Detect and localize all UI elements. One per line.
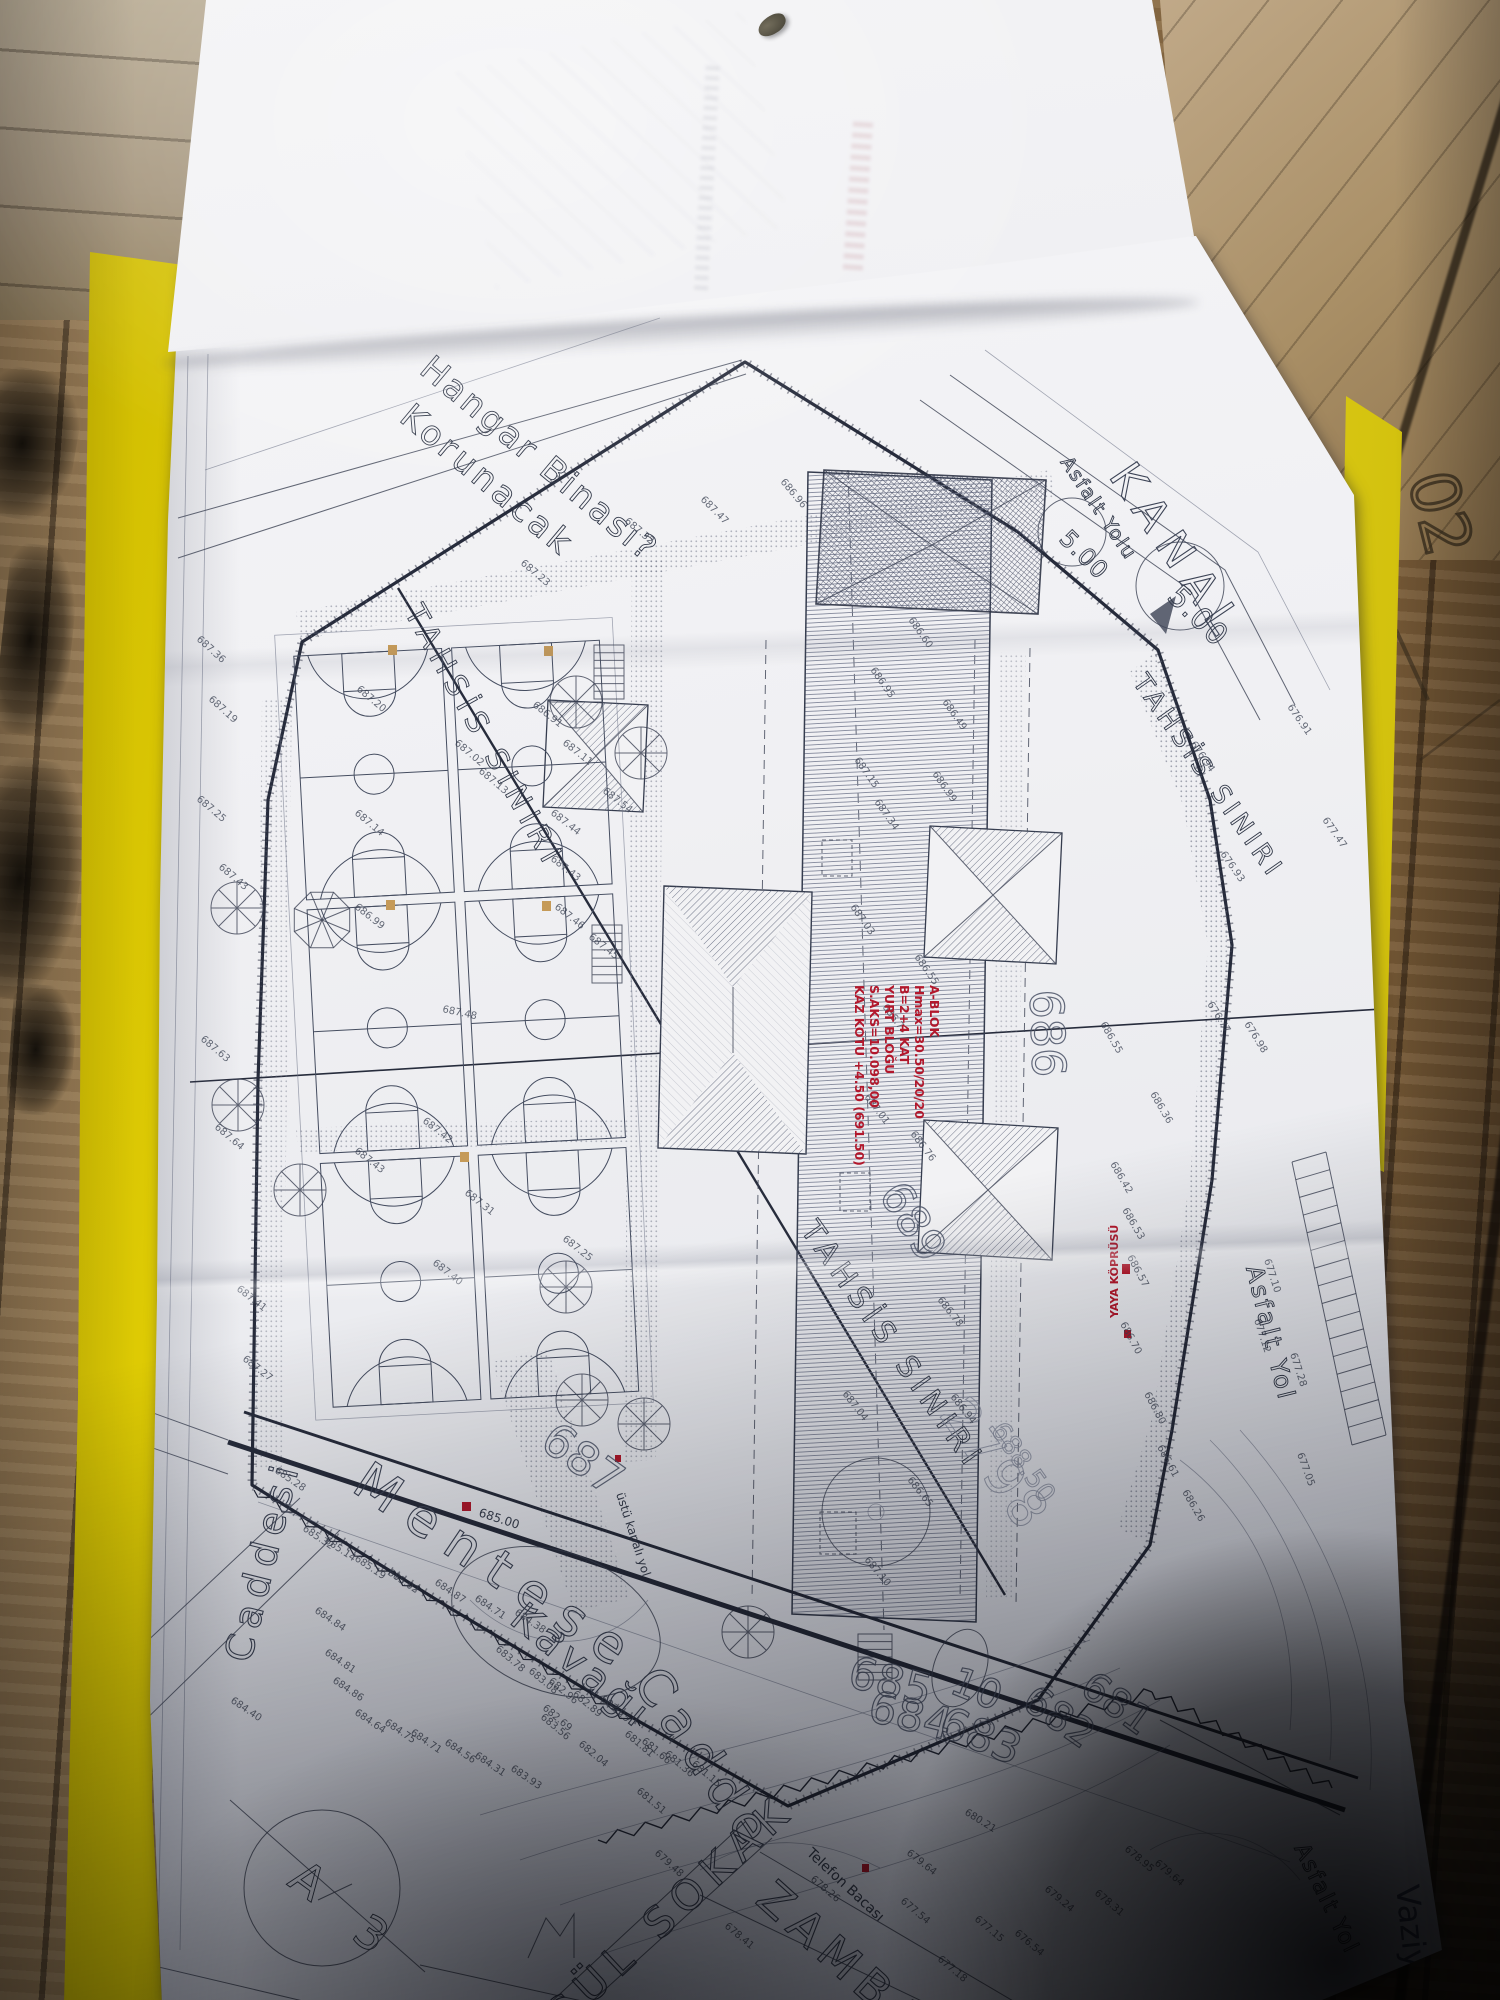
gazebo-octagon [294,892,349,947]
basketball-court [294,648,455,899]
spot-elevation: 684.56 [442,1737,477,1766]
plan-label-block-a3-number: 3 [344,1903,399,1964]
spot-elevation: 683.93 [508,1763,543,1792]
plan-label-asfalt-bottom: Asfalt Yol [1289,1840,1364,1958]
red-block-line: YURT BLOĞU [882,984,897,1074]
spot-elevation: 676.91 [1285,702,1314,737]
red-block-line: Hmax=30.50/20/20 [912,985,927,1119]
spot-elevation: 680.21 [962,1807,998,1835]
spot-elevation: 679.48 [652,1848,685,1880]
spot-elevation: 687.48 [441,1004,478,1022]
red-block-line: S.AKS=10.098,00 [867,985,882,1108]
spot-elevation: 687.20 [354,684,388,715]
ink-showthrough [450,11,789,289]
photo-of-site-plan: 02 [0,0,1500,2000]
plan-label-pen-vaziyet: Vaziyet [1388,1883,1438,2000]
spot-elevation: 677.47 [1320,815,1349,850]
spot-elevation: 677.05 [1294,1451,1316,1488]
plan-label-block-a3-letter: A [280,1849,338,1911]
spot-elevation: 678.31 [1092,1888,1126,1919]
spot-elevation: 686.26 [1179,1488,1206,1524]
spot-elevation: 685.02 [385,1567,420,1596]
spot-elevation: 684.31 [472,1750,507,1779]
spot-elevation: 686.36 [1147,1090,1174,1126]
spot-elevation: 679.64 [1152,1858,1186,1889]
tree-symbol [274,1164,326,1216]
spot-elevation: 677.15 [972,1914,1006,1945]
spot-elevation: 687.31 [462,1188,496,1218]
spot-elevation: 677.18 [935,1954,969,1985]
red-block-line: A-BLOK [927,985,942,1039]
plan-label-contour-686: 686 [1019,988,1076,1078]
spot-elevation: 678.95 [1122,1844,1156,1875]
spot-elevation: 677.54 [898,1896,932,1927]
spot-elevation: 684.84 [312,1605,347,1634]
tree-symbol [615,727,667,779]
basketball-court [307,902,468,1153]
spot-elevation: 678.41 [722,1921,756,1952]
spot-elevation: 679.24 [1042,1884,1076,1915]
spot-elevation: 687.47 [698,494,731,527]
spot-elevation: 684.81 [322,1647,357,1676]
spot-elevation: 684.86 [330,1675,365,1704]
spot-elevation: 676.98 [1241,1020,1269,1056]
basketball-court [465,894,626,1145]
spot-elevation: 681.51 [634,1786,668,1817]
red-block-line: B=2+4 KAT [897,985,912,1065]
ink-showthrough [843,119,873,270]
spot-elevation: 684.64 [352,1707,387,1736]
spot-elevation: 686.42 [1107,1160,1134,1196]
spot-elevation: 686.70 [1117,1320,1143,1356]
tree-symbol [618,1398,670,1450]
spot-elevation: 682.04 [576,1739,610,1770]
red-block-line: KAZ KOTU +4.50 (691.50) [852,985,867,1166]
spot-elevation: 679.64 [904,1848,938,1878]
spot-elevation: 676.54 [1012,1928,1046,1959]
spot-elevation: 686.96 [778,477,809,511]
spot-elevation: 687.46 [552,902,586,932]
paper-edge-shading [150,260,280,2000]
retaining-stairs-right [1292,1152,1386,1445]
